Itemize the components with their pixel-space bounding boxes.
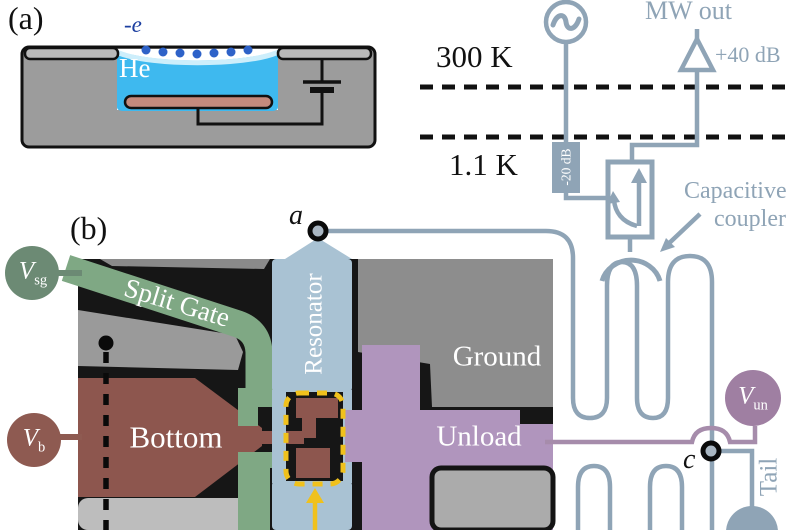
vb-label: Vb: [23, 425, 46, 455]
vun-sub: un: [753, 397, 768, 413]
gray-block-in-unload: [432, 468, 553, 530]
unload-label: Unload: [436, 423, 521, 452]
ground-label: Ground: [453, 343, 542, 372]
vun-label: Vun: [738, 383, 768, 413]
panel-a-schematic: [22, 46, 375, 148]
circulator-curved-arrow: [614, 200, 637, 226]
mw-out-label: MW out: [645, 0, 732, 24]
sine-icon: [553, 16, 579, 29]
vsg-label: Vsg: [19, 258, 47, 288]
tail-electrode-pad: [726, 506, 778, 530]
bottom-pink-electrode: [125, 96, 272, 108]
unload-wire: [545, 426, 755, 442]
tail-line: [719, 451, 752, 508]
panel-b-label: (b): [70, 212, 107, 244]
terminal-c-dot: [703, 443, 719, 459]
helium-label: He: [119, 55, 150, 82]
terminal-a-dot: [310, 223, 326, 239]
vb-sub: b: [38, 439, 45, 455]
circulator-up-arrowhead: [631, 168, 647, 183]
temperature-1p1K: 1.1 K: [449, 149, 518, 180]
figure-root: (a) -e He 300 K 1.1 K MW out +40 dB Capa…: [0, 0, 800, 530]
amplifier-gain-label: +40 dB: [715, 44, 781, 66]
amplifier-icon: [681, 39, 713, 70]
vsg-sub: sg: [34, 272, 47, 288]
temperature-stage-lines: [420, 87, 792, 137]
vsg-base: V: [19, 257, 34, 284]
resonator-label: Resonator: [302, 273, 327, 374]
coupler-label-line1: Capacitive: [684, 179, 787, 203]
bottom-label: Bottom: [129, 422, 222, 453]
temperature-300K: 300 K: [436, 41, 513, 72]
amplifier-line: [632, 29, 697, 161]
left-top-electrode: [25, 48, 118, 59]
panel-a-label: (a): [8, 2, 44, 34]
lower-meander-right: [650, 466, 682, 530]
lower-meander-left: [578, 466, 610, 530]
attenuator-label: -20 dB: [559, 148, 573, 185]
terminal-c-label: c: [683, 446, 695, 474]
coupler-label-line2: coupler: [714, 207, 786, 231]
vun-base: V: [738, 382, 753, 409]
right-top-electrode: [278, 48, 371, 59]
electron-label: -e: [124, 13, 142, 36]
terminal-a-label: a: [289, 202, 303, 230]
vb-base: V: [23, 424, 38, 451]
tail-label: Tail: [757, 458, 782, 497]
attenuator-out-line: [566, 193, 608, 198]
